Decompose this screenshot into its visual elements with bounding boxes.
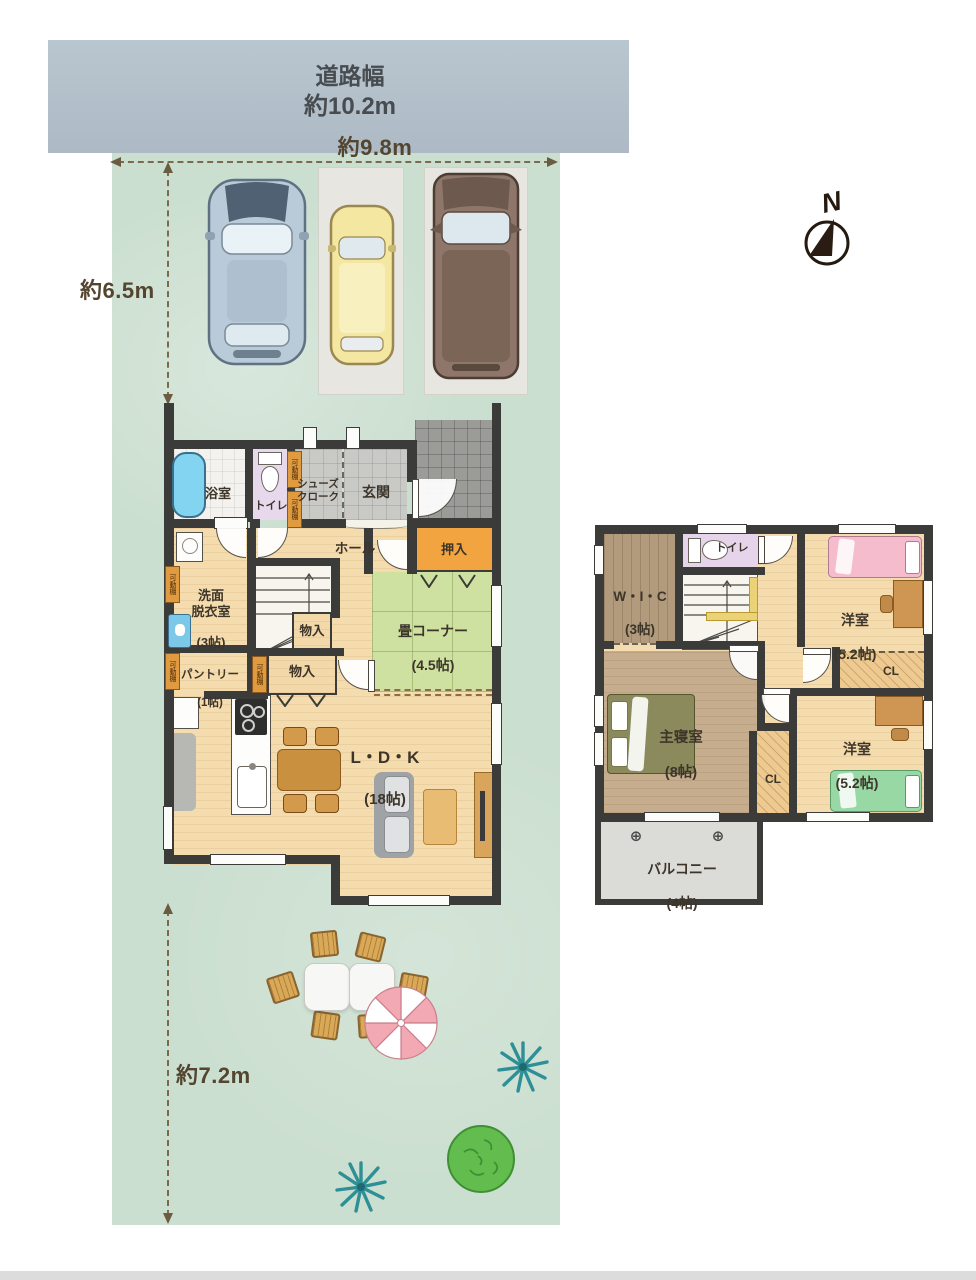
window [210,854,286,865]
garden-tree [444,1122,518,1196]
arrow-up-icon [163,162,173,173]
dim-depth-upper: 約6.5m [80,273,156,305]
wall [331,558,340,618]
dim-line-lower [167,910,169,1216]
room-name: バルコニー [647,861,717,877]
window [368,895,450,906]
road-width-label: 約10.2m [268,92,432,121]
garden-table [304,963,350,1011]
dim-line-front [118,161,550,163]
arrow-down-icon [163,1213,173,1224]
wall [492,403,501,905]
closet-chevron-icon [308,694,326,707]
room-label-ldk: L・D・K (18帖) [343,727,427,810]
wall [407,440,417,482]
master-door-leaf [729,645,759,652]
arrow-up-icon [163,903,173,914]
wall [789,688,797,813]
window [594,695,604,727]
dim-front-width: 約9.8m [330,130,420,162]
wall [174,519,216,528]
room-name: 洋室 [841,612,869,628]
garden-plant [496,1040,550,1094]
wall [683,567,765,575]
dining-chair [315,794,339,813]
room-label-cl1: CL [876,664,906,679]
room-label-wash: 洗面 脱衣室 (3帖) [178,572,244,651]
room-name: 主寝室 [659,730,703,746]
room-name: 畳コーナー [398,623,468,639]
room-size: (4帖) [666,895,697,911]
room-label-master: 主寝室 (8帖) [645,712,717,783]
dining-chair [283,727,307,746]
room-size: (3帖) [197,635,226,650]
floor-plan-page: 道路幅 約10.2m 約9.8m 約6.5m [0,0,976,1280]
window [697,524,747,534]
balcony-sliding-door [644,812,720,822]
arrow-right-icon [547,157,558,167]
wall [749,731,757,813]
room-label-toilet1: トイレ [250,500,292,513]
car-blue [205,176,309,368]
parasol [362,984,440,1062]
window [838,524,896,534]
room-label-shoes: シューズ クローク [292,478,344,504]
room-label-bedroom1: 洋室 (5.2帖) [820,595,890,663]
kitchen-sink [237,766,267,808]
window [491,703,502,765]
wall [407,518,501,528]
tatami-ldk-open-boundary [374,689,492,691]
bottom-edge-bar [0,1271,976,1280]
room-label-bath: 浴室 [196,486,240,502]
garden-chair [310,930,340,959]
compass-n-label: N [819,190,845,219]
room-name: 洗面 脱衣室 [191,588,230,619]
dining-chair [283,794,307,813]
toilet-tank [688,538,701,563]
balcony-parapet [595,822,601,905]
dim-depth-lower: 約7.2m [176,1058,256,1090]
tatami-ldk-open-boundary2 [374,694,492,696]
entrance-door-leaf [412,479,419,519]
room-name: パントリー [181,669,239,681]
garden-plant [334,1160,388,1214]
room-label-balcony: バルコニー (4帖) [634,844,730,912]
desk [875,696,923,726]
window [923,700,933,750]
room-label-cl2: CL [758,772,788,787]
room-label-tatami: 畳コーナー (4.5帖) [380,606,486,674]
wall [675,534,683,649]
desk [893,580,923,628]
window [346,427,360,449]
wall [407,528,417,574]
room-label-storage1: 物入 [293,624,331,639]
closet-chevron-icon [276,694,294,707]
room-name: 洋室 [843,741,871,757]
wall [253,558,340,566]
window [594,732,604,766]
compass-icon: N [796,190,862,274]
shelf-tag: 可動棚 [252,656,267,693]
dim-line-upper [167,170,169,398]
room-label-bedroom2: 洋室 (5.2帖) [822,724,892,792]
room-size: (8帖) [665,765,697,781]
entrance-step [344,520,407,529]
wall [924,525,933,822]
room-size: (4.5帖) [412,657,455,673]
room-size: (18帖) [364,791,406,808]
wall [797,534,805,647]
garden-chair [310,1010,340,1040]
toilet2-door-leaf [758,536,765,564]
road-label: 道路幅 [268,62,432,90]
desk-chair [891,728,909,741]
room-label-pantry: パントリー (1帖) [176,654,244,710]
room-label-oshiire: 押入 [430,542,478,558]
room-size: (1帖) [197,697,223,709]
coffee-table [423,789,457,845]
bedroom2-door-leaf [763,688,791,695]
wic-open-boundary [614,643,656,645]
window [491,585,502,647]
car-yellow [328,203,396,367]
room-label-toilet2: トイレ [710,542,754,555]
ldk-door-leaf [368,660,375,692]
washing-machine [176,532,203,562]
room-label-storage2: 物入 [280,664,324,680]
window [923,580,933,635]
window [303,427,317,449]
closet-chevron-icon [458,574,476,588]
wall [604,641,614,649]
room-label-entrance: 玄関 [353,484,399,501]
closet-chevron-icon [420,574,438,588]
room-size: (5.2帖) [836,775,879,791]
bed-pink [828,536,922,578]
room-label-wic: W・I・C (3帖) [606,573,674,639]
room-size: (3帖) [625,622,655,637]
f1-floor-ldk-right [340,864,492,897]
wall [797,688,924,696]
room-label-hall: ホール [328,541,382,557]
balcony-parapet [757,822,763,905]
car-van-brown [430,170,522,382]
bathtub [172,452,206,518]
window [806,812,870,822]
stair-handrail [706,612,758,621]
room-name: W・I・C [613,589,666,604]
window [163,806,173,850]
room-size: (5.2帖) [834,646,877,662]
arrow-left-icon [110,157,121,167]
wall [256,648,344,656]
window [594,545,604,575]
toilet-tank [258,452,282,465]
dining-chair [315,727,339,746]
dining-table [277,749,341,791]
room-name: L・D・K [351,748,420,767]
